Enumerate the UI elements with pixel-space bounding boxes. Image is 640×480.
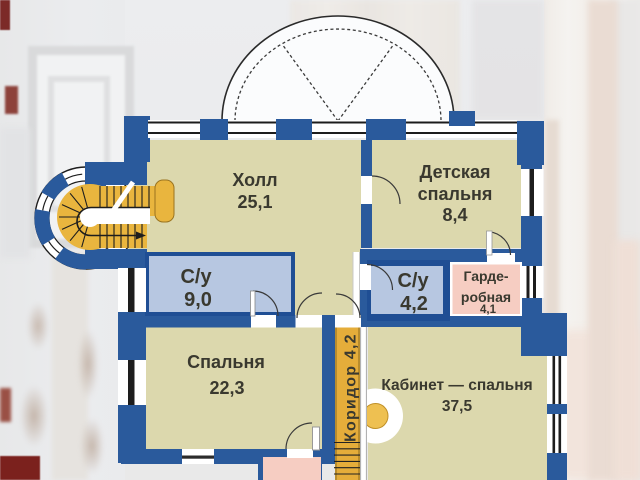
svg-text:Холл: Холл xyxy=(232,170,277,190)
svg-text:Гарде-: Гарде- xyxy=(463,268,508,284)
svg-text:Спальня: Спальня xyxy=(187,352,265,372)
svg-text:37,5: 37,5 xyxy=(442,398,473,415)
svg-text:Коридор 4,2: Коридор 4,2 xyxy=(343,333,360,442)
svg-text:Детская: Детская xyxy=(420,162,491,182)
svg-text:25,1: 25,1 xyxy=(237,192,272,212)
svg-text:спальня: спальня xyxy=(418,184,493,204)
svg-text:робная: робная xyxy=(461,289,511,305)
svg-text:22,3: 22,3 xyxy=(209,378,244,398)
svg-text:С/у: С/у xyxy=(397,270,429,292)
svg-text:4,1: 4,1 xyxy=(480,304,497,316)
svg-text:4,2: 4,2 xyxy=(400,293,428,315)
svg-text:9,0: 9,0 xyxy=(184,289,212,311)
svg-text:8,4: 8,4 xyxy=(442,205,467,225)
svg-text:Кабинет — спальня: Кабинет — спальня xyxy=(381,377,532,394)
svg-text:С/у: С/у xyxy=(180,266,212,288)
